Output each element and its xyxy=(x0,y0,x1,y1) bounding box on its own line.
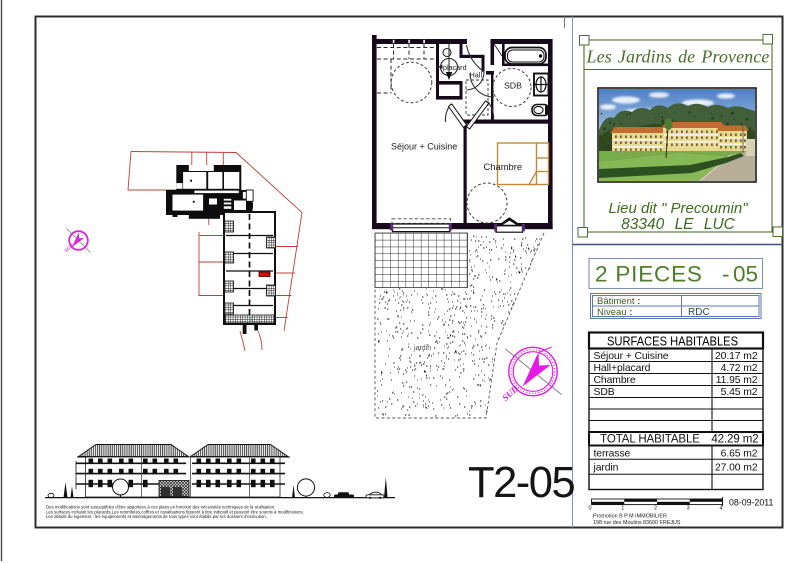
svg-text:Séjour + Cuisine: Séjour + Cuisine xyxy=(594,351,669,362)
svg-text:Les détails du logement : les: Les détails du logement : les équipement… xyxy=(46,514,267,519)
svg-text:Séjour + Cuisine: Séjour + Cuisine xyxy=(391,142,457,152)
svg-text:Chambre: Chambre xyxy=(594,375,636,386)
svg-text:Niveau :: Niveau : xyxy=(597,307,632,318)
svg-text:1: 1 xyxy=(621,506,624,512)
svg-text:27.00 m2: 27.00 m2 xyxy=(715,463,758,474)
svg-text:11.95 m2: 11.95 m2 xyxy=(716,375,758,386)
svg-text:3: 3 xyxy=(687,506,690,512)
svg-text:Hall: Hall xyxy=(470,71,483,80)
svg-text:2: 2 xyxy=(654,506,657,512)
svg-text:6.65 m2: 6.65 m2 xyxy=(721,449,758,460)
svg-text:SURFACES HABITABLES: SURFACES HABITABLES xyxy=(607,335,738,349)
svg-text:Lieu dit " Precoumin": Lieu dit " Precoumin" xyxy=(608,200,748,217)
svg-text:20.17 m2: 20.17 m2 xyxy=(715,351,758,362)
svg-text:TOTAL HABITABLE: TOTAL HABITABLE xyxy=(600,434,700,446)
svg-text:Chambre: Chambre xyxy=(484,161,523,172)
svg-text:placard: placard xyxy=(443,63,467,72)
svg-text:08-09-2011: 08-09-2011 xyxy=(729,498,773,508)
svg-text:jardin: jardin xyxy=(593,463,619,474)
svg-text:198 rue des Moulins 83600 FREJ: 198 rue des Moulins 83600 FREJUS xyxy=(593,520,681,526)
svg-text:SDB: SDB xyxy=(594,387,615,398)
svg-text:terrasse: terrasse xyxy=(594,449,631,460)
svg-text:Les Jardins de Provence: Les Jardins de Provence xyxy=(586,47,770,67)
svg-text:SDB: SDB xyxy=(504,81,522,91)
svg-text:Hall+placard: Hall+placard xyxy=(594,363,651,374)
svg-text:42.29 m2: 42.29 m2 xyxy=(711,434,758,446)
svg-text:4: 4 xyxy=(719,506,722,512)
svg-text:jardin: jardin xyxy=(413,345,431,352)
svg-text:RDC: RDC xyxy=(688,307,710,318)
svg-text:T2-05: T2-05 xyxy=(468,459,574,507)
svg-text:5.45 m2: 5.45 m2 xyxy=(721,387,758,398)
svg-text:83340 LE LUC: 83340 LE LUC xyxy=(621,216,735,233)
svg-text:-: - xyxy=(722,262,730,287)
svg-text:Promotion B P M IMMOBILIER: Promotion B P M IMMOBILIER xyxy=(593,514,667,520)
svg-text:Bâtiment :: Bâtiment : xyxy=(597,296,640,307)
svg-text:4.72 m2: 4.72 m2 xyxy=(721,363,758,374)
svg-text:2 PIECES: 2 PIECES xyxy=(595,262,703,287)
svg-text:05: 05 xyxy=(733,262,758,287)
svg-text:0: 0 xyxy=(588,506,591,512)
